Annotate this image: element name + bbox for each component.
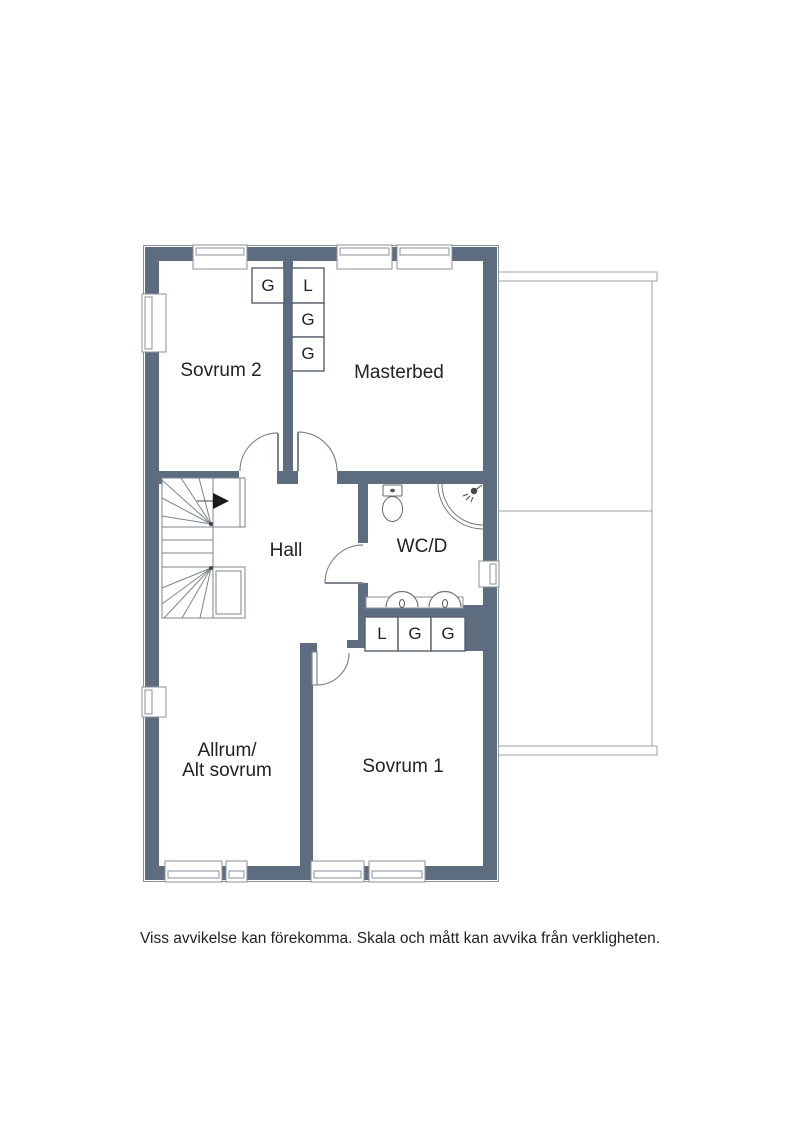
wall-divider-foot [277, 471, 298, 484]
closet-label-sovrum1-g1: G [408, 624, 421, 644]
window [479, 561, 499, 587]
wall-closet-right-block [465, 605, 483, 651]
window [311, 861, 364, 882]
wall-hall-top-right [337, 471, 483, 484]
window [165, 861, 222, 882]
window [397, 245, 452, 269]
room-label-sovrum2: Sovrum 2 [180, 361, 261, 381]
closet-label-sovrum2-g: G [261, 276, 274, 296]
room-label-allrum: Allrum/ Alt sovrum [182, 741, 272, 781]
room-label-sovrum1: Sovrum 1 [362, 757, 443, 777]
closet-label-masterbed-g2: G [301, 344, 314, 364]
closet-label-masterbed-l: L [303, 276, 312, 296]
wall-wcd-west-upper [358, 484, 368, 543]
window [337, 245, 392, 269]
room-label-allrum-line2: Alt sovrum [182, 761, 272, 781]
floorplan-drawing [0, 0, 800, 1131]
room-label-wcd: WC/D [397, 537, 448, 557]
room-label-hall: Hall [270, 541, 303, 561]
closet-label-sovrum1-l: L [377, 624, 386, 644]
room-label-allrum-line1: Allrum/ [182, 741, 272, 761]
window [226, 861, 247, 882]
terrace-outline [497, 272, 657, 755]
closet-label-sovrum1-g2: G [441, 624, 454, 644]
window [142, 687, 166, 717]
window [369, 861, 425, 882]
window [142, 294, 166, 352]
window [193, 245, 247, 269]
disclaimer-text: Viss avvikelse kan förekomma. Skala och … [140, 930, 660, 948]
toilet-icon [383, 485, 403, 522]
closet-label-masterbed-g1: G [301, 310, 314, 330]
room-label-masterbed: Masterbed [354, 363, 444, 383]
wall-wcd-west-foot [347, 640, 366, 648]
floorplan-page: Sovrum 2 Masterbed Hall WC/D Allrum/ Alt… [0, 0, 800, 1131]
terrace-top-edge [497, 272, 657, 281]
terrace-bottom-edge [497, 746, 657, 755]
wall-sovrum1-west [300, 643, 313, 866]
